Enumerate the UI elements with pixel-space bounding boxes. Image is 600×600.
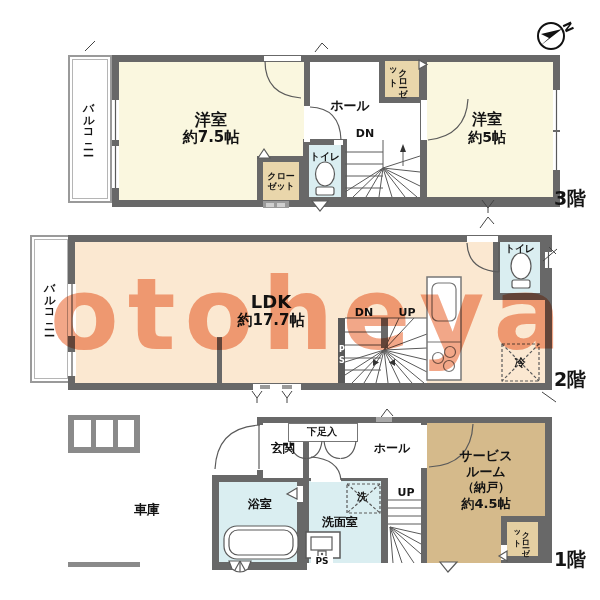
toilet-3f-label: トイレ	[310, 151, 341, 163]
room-bath	[219, 482, 297, 562]
up-1f-label: UP	[398, 487, 415, 500]
watermark: otoheya	[50, 256, 570, 373]
floor-label-1f: 1階	[554, 549, 586, 571]
garage-edge-bar	[68, 562, 140, 567]
toilet-2f-label: トイレ	[505, 243, 536, 255]
western2-size-label: 約5帖	[468, 129, 506, 145]
dn-3f-label: DN	[356, 128, 374, 141]
shoe-box-label: 下足入	[307, 426, 337, 438]
service-room-label-1: サービス	[460, 449, 513, 464]
door-gap	[467, 236, 498, 242]
closet-3f-top-label: クローゼット	[388, 62, 407, 96]
service-room-label-4: 約4.5帖	[461, 497, 510, 512]
washer-label: 洗	[357, 491, 367, 503]
garage-window-pane	[118, 420, 134, 447]
north-label: N	[560, 19, 577, 34]
hall-3f-label: ホール	[330, 99, 370, 114]
hall-1f-label: ホール	[374, 442, 411, 456]
entrance-label: 玄関	[271, 442, 295, 456]
balcony-3f-label: バルコニー	[82, 95, 94, 165]
door-gap	[501, 545, 507, 560]
garage-window-pane	[96, 420, 113, 447]
floorplan: バルコニー 洋室 約7.5帖 ホール DN トイレ クローゼット クローゼット …	[0, 0, 600, 600]
door-gap	[421, 100, 427, 140]
service-room-label-3: （納戸）	[462, 481, 510, 495]
western1-name-label: 洋室	[195, 111, 227, 129]
door-gap	[257, 425, 263, 470]
door-gap	[264, 56, 301, 61]
door-gap	[421, 425, 427, 468]
closet-3f-bottom-label: クローゼット	[266, 171, 296, 192]
door-gap	[311, 476, 341, 482]
door-gap	[297, 486, 303, 502]
bath-label: 浴室	[248, 498, 272, 512]
ps-1f-label: PS	[315, 556, 328, 566]
floor-label-3f: 3階	[554, 188, 586, 210]
washroom-label: 洗面室	[322, 516, 358, 530]
service-room-label-2: ルーム	[466, 465, 506, 480]
western1-size-label: 約7.5帖	[183, 129, 240, 146]
western2-name-label: 洋室	[472, 111, 502, 128]
vent-gap	[253, 384, 301, 390]
garage-label: 車庫	[134, 503, 160, 518]
door-gap	[304, 106, 310, 142]
door-gap	[334, 140, 343, 145]
closet-1f-label: クローゼット	[512, 525, 529, 553]
garage-window-pane	[74, 420, 91, 447]
